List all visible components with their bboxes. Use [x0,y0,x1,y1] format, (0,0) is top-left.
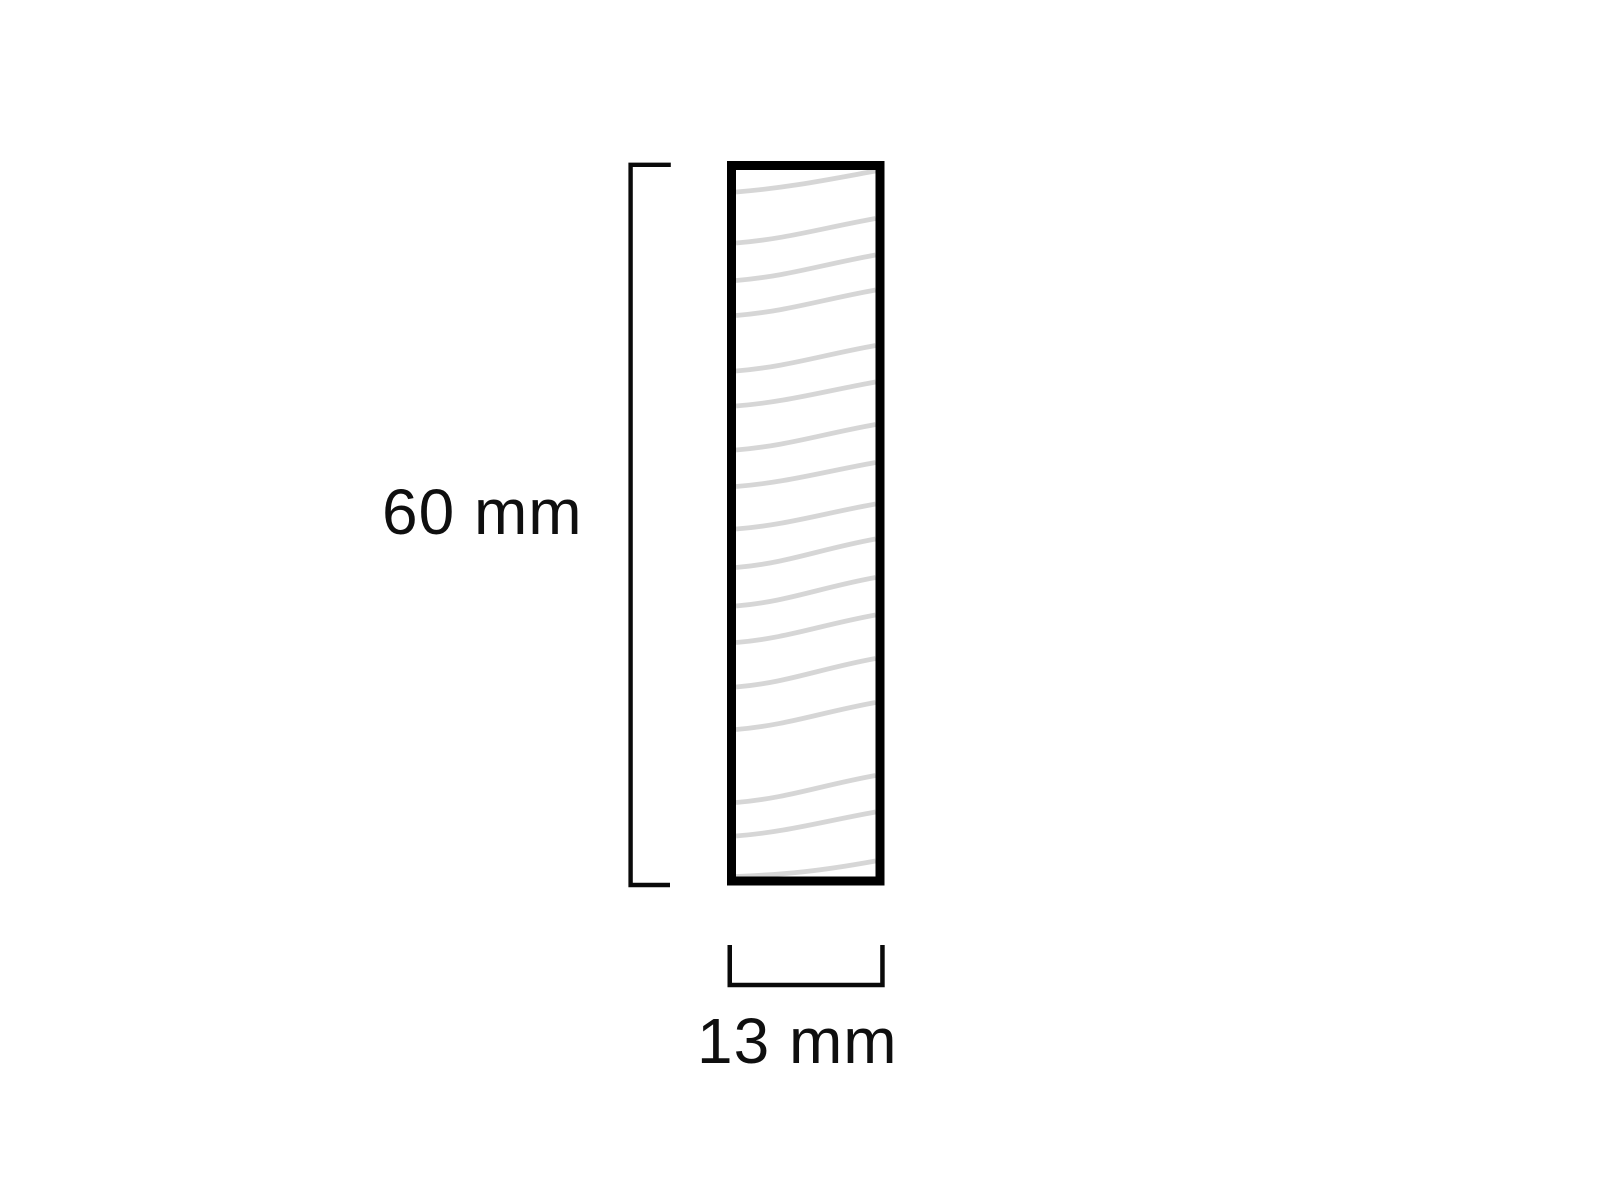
svg-text:60 mm: 60 mm [382,476,583,548]
svg-text:13 mm: 13 mm [697,1005,898,1077]
